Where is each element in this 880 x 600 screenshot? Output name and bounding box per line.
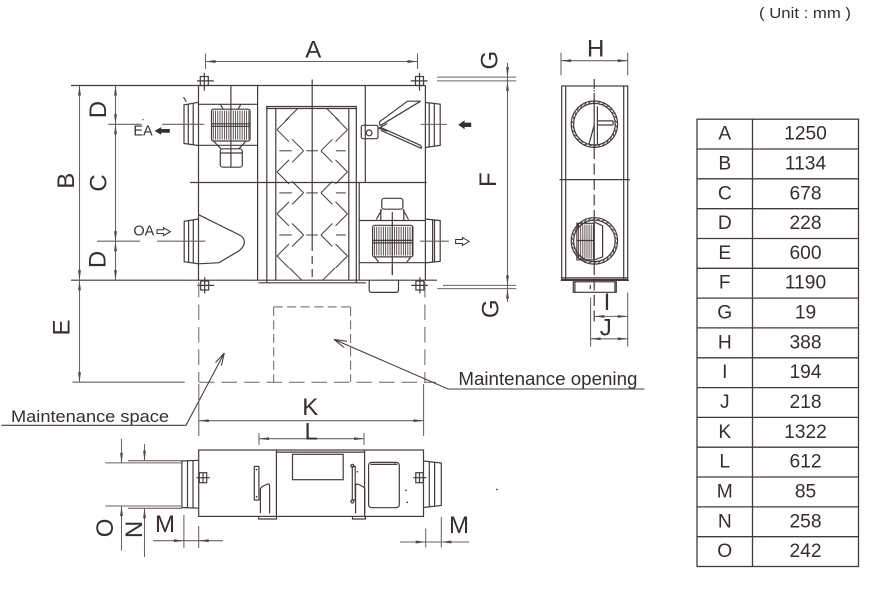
svg-text:Maintenance space: Maintenance space	[11, 407, 169, 426]
svg-text:E: E	[48, 319, 75, 335]
svg-text:I: I	[604, 289, 611, 316]
svg-text:J: J	[720, 392, 730, 413]
svg-text:K: K	[302, 394, 318, 421]
svg-text:N: N	[718, 511, 732, 532]
svg-text:O: O	[92, 519, 119, 538]
svg-text:E: E	[718, 243, 731, 264]
svg-text:19: 19	[795, 303, 816, 324]
svg-text:H: H	[718, 332, 732, 353]
svg-text:B: B	[718, 153, 731, 174]
svg-text:678: 678	[789, 183, 821, 204]
svg-text:258: 258	[789, 511, 821, 532]
svg-text:M: M	[717, 481, 733, 502]
svg-text:242: 242	[789, 541, 821, 562]
svg-text:1322: 1322	[784, 422, 827, 443]
svg-text:D: D	[85, 101, 112, 118]
svg-text:388: 388	[789, 332, 821, 353]
svg-text:D: D	[85, 251, 112, 268]
svg-text:B: B	[53, 173, 80, 189]
svg-text:I: I	[722, 362, 727, 383]
svg-text:G: G	[717, 303, 732, 324]
svg-text:M: M	[449, 512, 469, 539]
svg-text:M: M	[155, 511, 175, 538]
svg-text:85: 85	[795, 481, 816, 502]
svg-text:N: N	[121, 521, 148, 538]
svg-text:L: L	[305, 418, 318, 445]
svg-text:G: G	[477, 51, 504, 70]
svg-text:G: G	[478, 299, 505, 318]
svg-text:A: A	[305, 36, 321, 63]
svg-text:F: F	[475, 172, 502, 187]
svg-text:C: C	[85, 174, 112, 191]
svg-text:J: J	[600, 314, 612, 341]
svg-text:OA: OA	[133, 224, 154, 240]
svg-text:EA: EA	[133, 124, 153, 140]
svg-text:600: 600	[789, 243, 821, 264]
svg-text:D: D	[718, 213, 732, 234]
svg-text:( Unit : mm ): ( Unit : mm )	[759, 6, 851, 22]
svg-text:H: H	[587, 36, 604, 63]
svg-text:C: C	[718, 183, 732, 204]
svg-text:F: F	[719, 273, 731, 294]
svg-text:Maintenance opening: Maintenance opening	[458, 369, 637, 389]
svg-text:O: O	[717, 541, 732, 562]
svg-text:A: A	[718, 124, 731, 145]
svg-text:194: 194	[789, 362, 821, 383]
svg-text:218: 218	[789, 392, 821, 413]
svg-text:1190: 1190	[785, 273, 826, 294]
svg-text:1134: 1134	[785, 153, 827, 174]
svg-text:1250: 1250	[784, 124, 827, 145]
svg-text:L: L	[719, 452, 730, 473]
svg-text:612: 612	[789, 452, 821, 473]
svg-text:K: K	[718, 422, 731, 443]
svg-text:228: 228	[789, 213, 821, 234]
